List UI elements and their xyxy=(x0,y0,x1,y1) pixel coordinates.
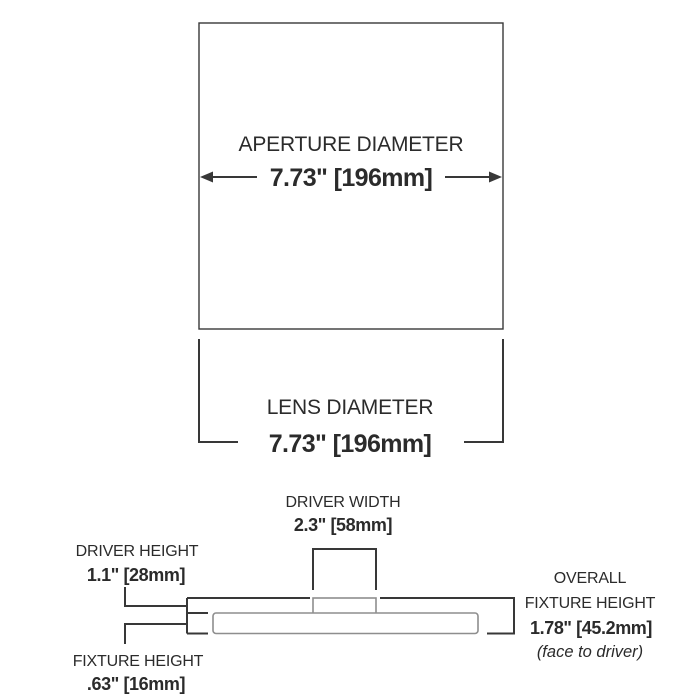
aperture-diameter-label: APERTURE DIAMETER xyxy=(239,133,464,156)
aperture-dim-arrow-right xyxy=(445,172,502,183)
aperture-diameter-value: 7.73" [196mm] xyxy=(270,164,432,192)
driver-height-leader xyxy=(125,587,187,606)
driver-body-outline xyxy=(313,598,376,614)
fixture-body-outline xyxy=(213,613,478,634)
lens-diameter-label: LENS DIAMETER xyxy=(267,396,434,419)
fixture-height-label: FIXTURE HEIGHT xyxy=(73,653,204,670)
overall-fixture-height-note: (face to driver) xyxy=(537,643,643,661)
aperture-dim-arrow-left xyxy=(200,172,257,183)
arrow-right-head-icon xyxy=(489,172,502,183)
overall-fixture-height-label-line2: FIXTURE HEIGHT xyxy=(525,595,656,612)
driver-height-value: 1.1" [28mm] xyxy=(87,565,185,585)
driver-height-label: DRIVER HEIGHT xyxy=(76,543,199,560)
driver-width-value: 2.3" [58mm] xyxy=(294,515,392,535)
fixture-height-value: .63" [16mm] xyxy=(87,674,185,694)
driver-width-label: DRIVER WIDTH xyxy=(286,494,401,511)
overall-fixture-height-value: 1.78" [45.2mm] xyxy=(530,618,652,638)
fixture-dimension-diagram: APERTURE DIAMETER 7.73" [196mm] LENS DIA… xyxy=(0,0,700,700)
lens-diameter-value: 7.73" [196mm] xyxy=(269,430,431,458)
dimension-drawing: APERTURE DIAMETER 7.73" [196mm] LENS DIA… xyxy=(0,0,700,700)
lens-bracket-right xyxy=(464,339,503,442)
overall-fixture-height-label-line1: OVERALL xyxy=(554,570,627,587)
driver-width-bracket xyxy=(313,549,376,590)
arrow-left-head-icon xyxy=(200,172,213,183)
fixture-height-leader xyxy=(125,624,187,644)
lens-bracket-left xyxy=(199,339,238,442)
